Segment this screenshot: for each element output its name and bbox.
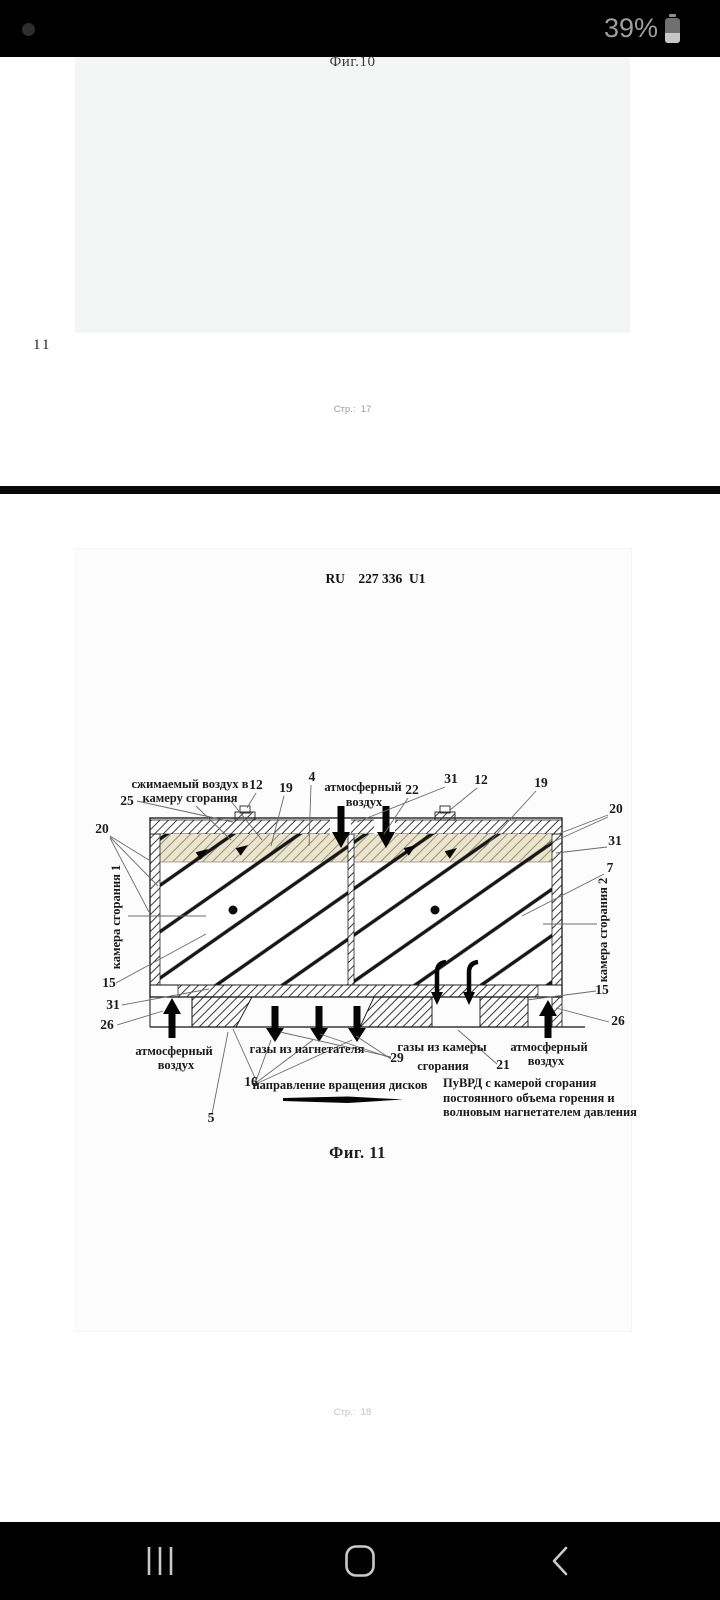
status-bar: 39%	[0, 0, 720, 57]
page17-margin-number: 11	[33, 337, 51, 354]
fig11-caption: Фиг. 11	[80, 1143, 635, 1163]
page-18-sheet: RU 227 336 U1 Фиг. 11	[75, 548, 632, 1332]
back-icon	[548, 1545, 572, 1577]
page18-footer: Стр.: 18	[75, 1407, 630, 1418]
page-17-sheet: Фиг.10	[75, 57, 630, 333]
fig10-caption: Фиг.10	[75, 54, 630, 71]
camera-punch-hole	[22, 23, 35, 36]
recents-button[interactable]	[130, 1531, 190, 1591]
home-button[interactable]	[330, 1531, 390, 1591]
battery-percentage: 39%	[604, 13, 658, 44]
battery-cap	[669, 14, 676, 17]
page-divider	[0, 486, 720, 494]
battery-body	[665, 18, 680, 43]
pdf-viewer[interactable]: Фиг.10 11 Стр.: 17 RU 227 336 U1 Фиг. 11…	[0, 57, 720, 1522]
recents-icon	[145, 1546, 175, 1576]
page17-footer: Стр.: 17	[75, 404, 630, 415]
battery-fill-level	[665, 33, 680, 43]
back-button[interactable]	[530, 1531, 590, 1591]
battery-icon	[665, 14, 680, 44]
navigation-bar	[0, 1522, 720, 1600]
patent-number-header: RU 227 336 U1	[98, 571, 653, 587]
home-icon	[345, 1545, 375, 1577]
phone-screen: 39% Фиг.10 11 Стр.: 17 RU 227 336 U1 Фиг…	[0, 0, 720, 1600]
